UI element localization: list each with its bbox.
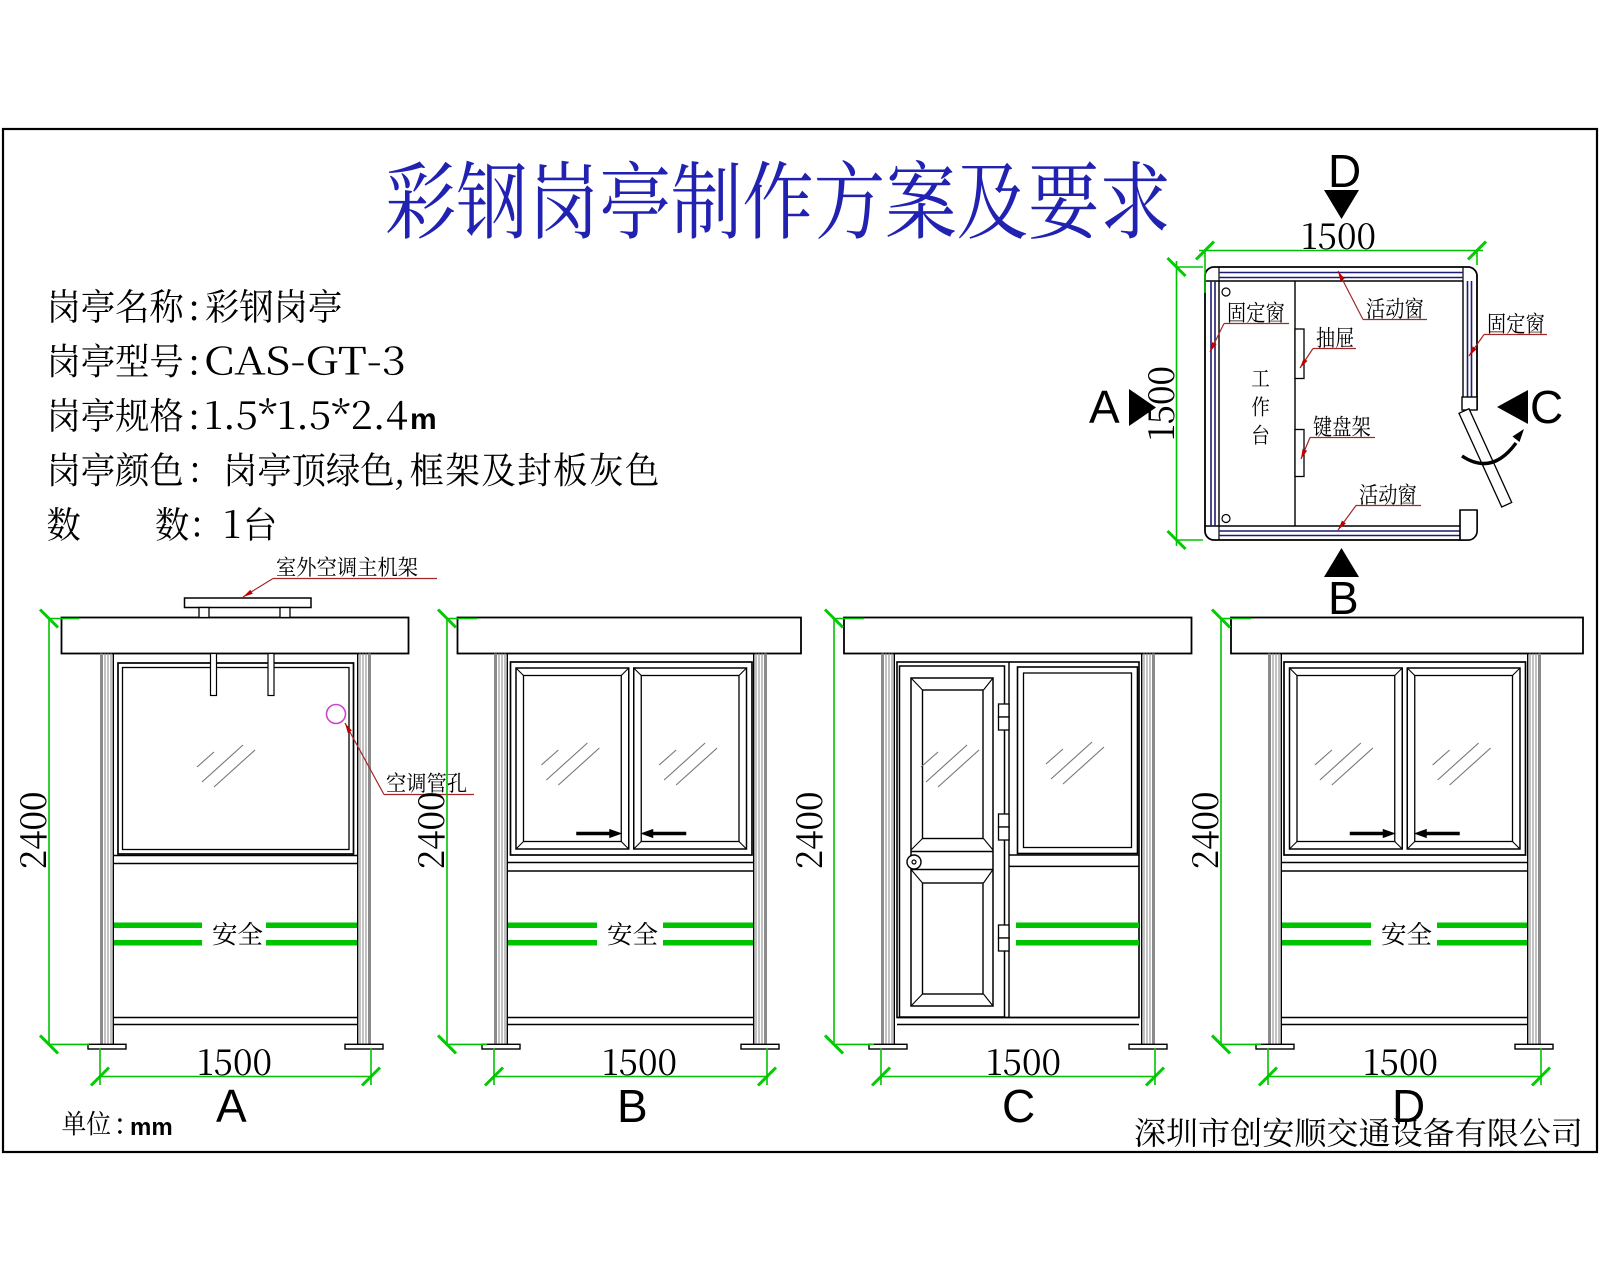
svg-text:m: m	[410, 403, 437, 436]
svg-text:B: B	[617, 1080, 648, 1132]
svg-text:A: A	[1089, 381, 1120, 433]
svg-text:D: D	[1328, 145, 1361, 197]
svg-text:B: B	[1328, 572, 1359, 624]
svg-text:mm: mm	[130, 1114, 173, 1141]
svg-text:C: C	[1002, 1080, 1035, 1132]
svg-text:D: D	[1392, 1080, 1425, 1132]
svg-text:C: C	[1530, 381, 1563, 433]
svg-text:A: A	[216, 1080, 247, 1132]
